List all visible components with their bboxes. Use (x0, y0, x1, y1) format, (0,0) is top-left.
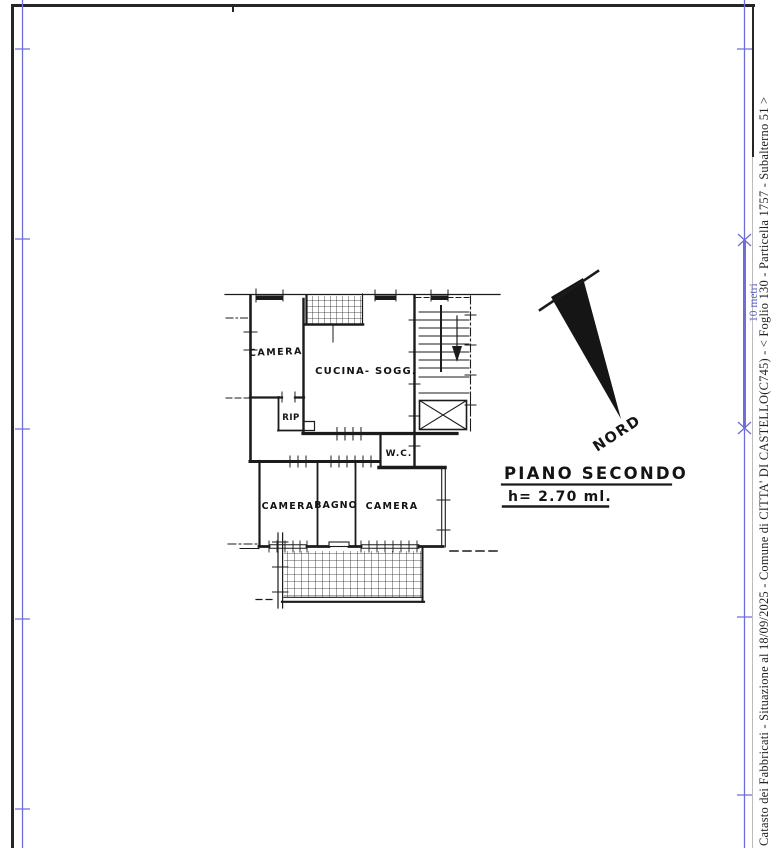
north-label: NORD (590, 413, 644, 456)
room-label-bagno: BAGNO (314, 500, 357, 511)
room-label-rip: RIP (282, 413, 299, 423)
floor-plan: CAMERA CUCINA- SOGG. RIP W.C. CAMERA BAG… (225, 271, 688, 608)
elevator-shaft (420, 398, 471, 433)
room-label-cucina-soggiorno: CUCINA- SOGG. (315, 366, 417, 377)
upper-block (225, 289, 500, 468)
north-arrow: NORD (540, 271, 644, 455)
room-label-wc: W.C. (386, 449, 413, 459)
height-note: h= 2.70 ml. (508, 489, 612, 505)
cadastral-plan-page: { "colors": { "paper": "#ffffff", "ink":… (0, 0, 773, 848)
floor-plan-svg: CAMERA CUCINA- SOGG. RIP W.C. CAMERA BAG… (0, 0, 773, 848)
room-label-camera-top: CAMERA (249, 346, 303, 359)
balcony-top (305, 294, 363, 342)
floor-title: PIANO SECONDO (504, 464, 688, 483)
room-label-camera-right: CAMERA (366, 501, 419, 512)
room-label-camera-left: CAMERA (262, 501, 315, 512)
cadastre-info-text: Catasto dei Fabbricati - Situazione al 1… (757, 4, 772, 846)
stairwell (409, 296, 476, 467)
plan-annotations: PIANO SECONDO h= 2.70 ml. (502, 464, 688, 507)
